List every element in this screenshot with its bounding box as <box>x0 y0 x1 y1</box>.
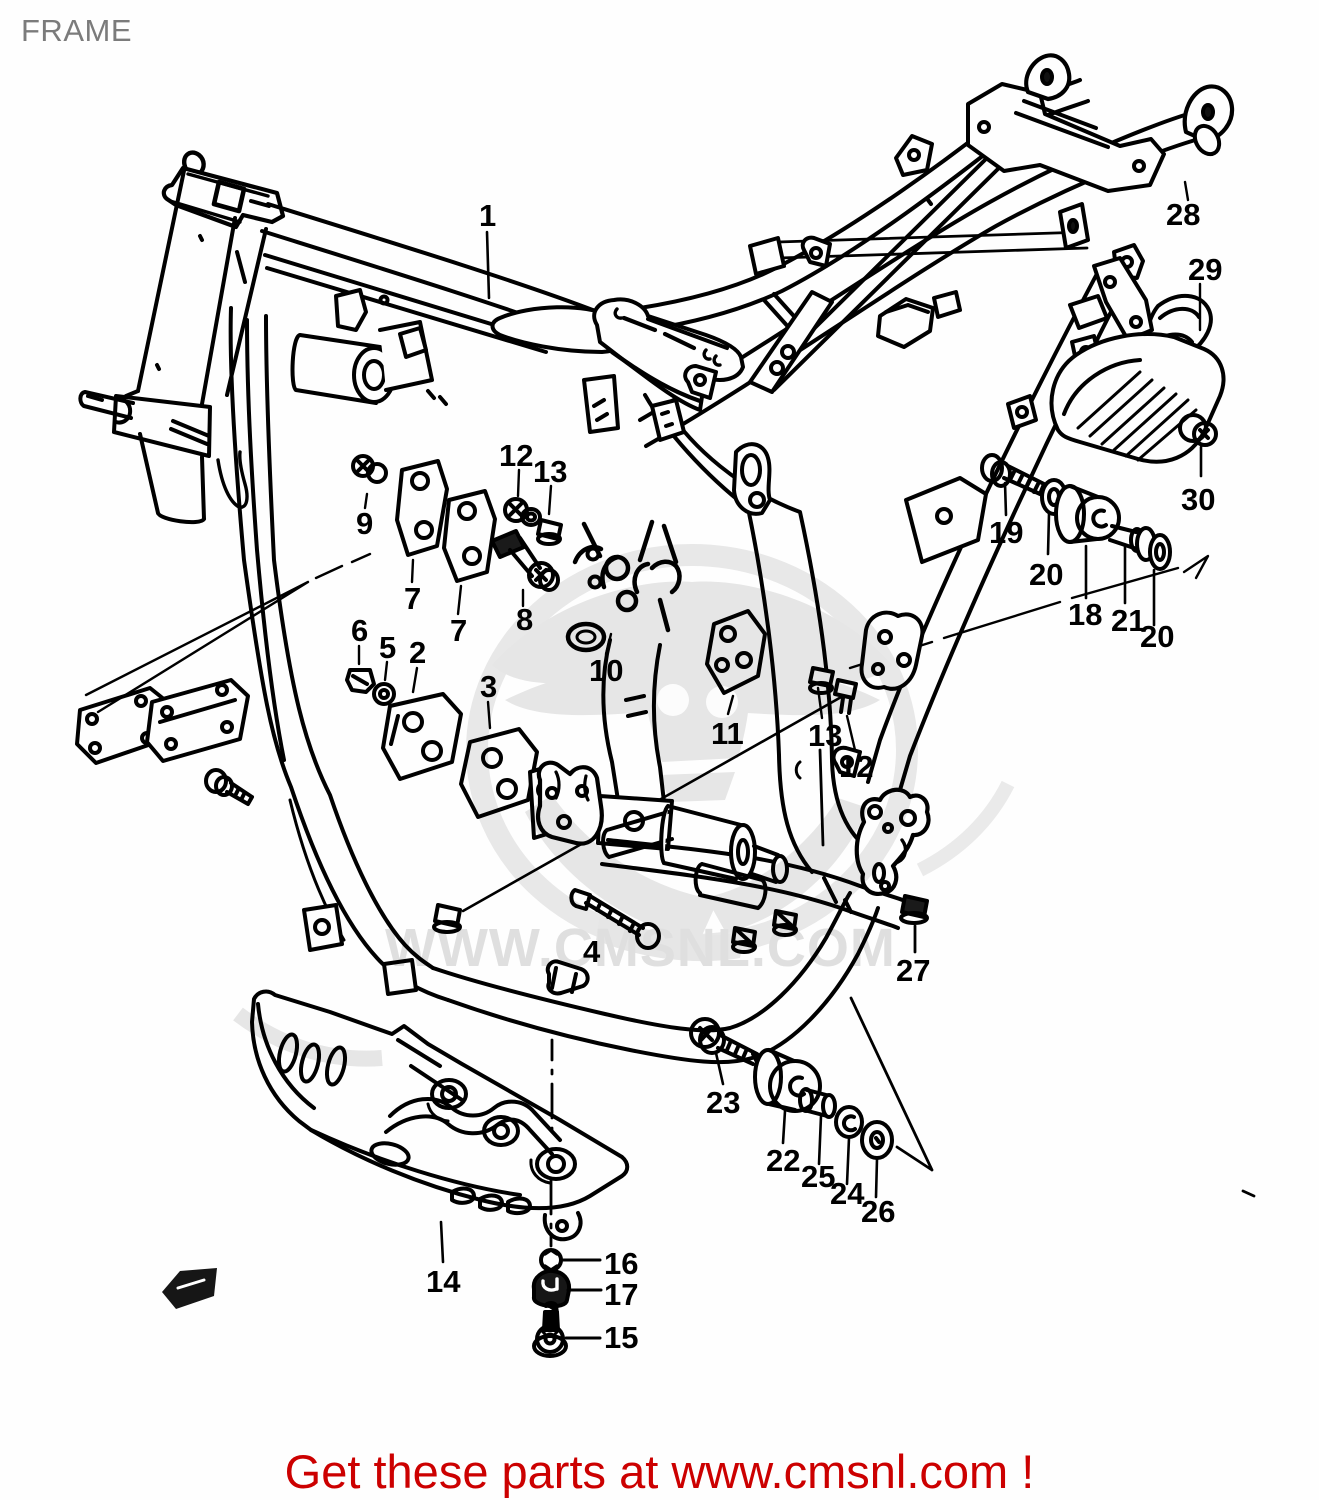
svg-text:WWW.CMSNL.COM: WWW.CMSNL.COM <box>385 918 896 978</box>
